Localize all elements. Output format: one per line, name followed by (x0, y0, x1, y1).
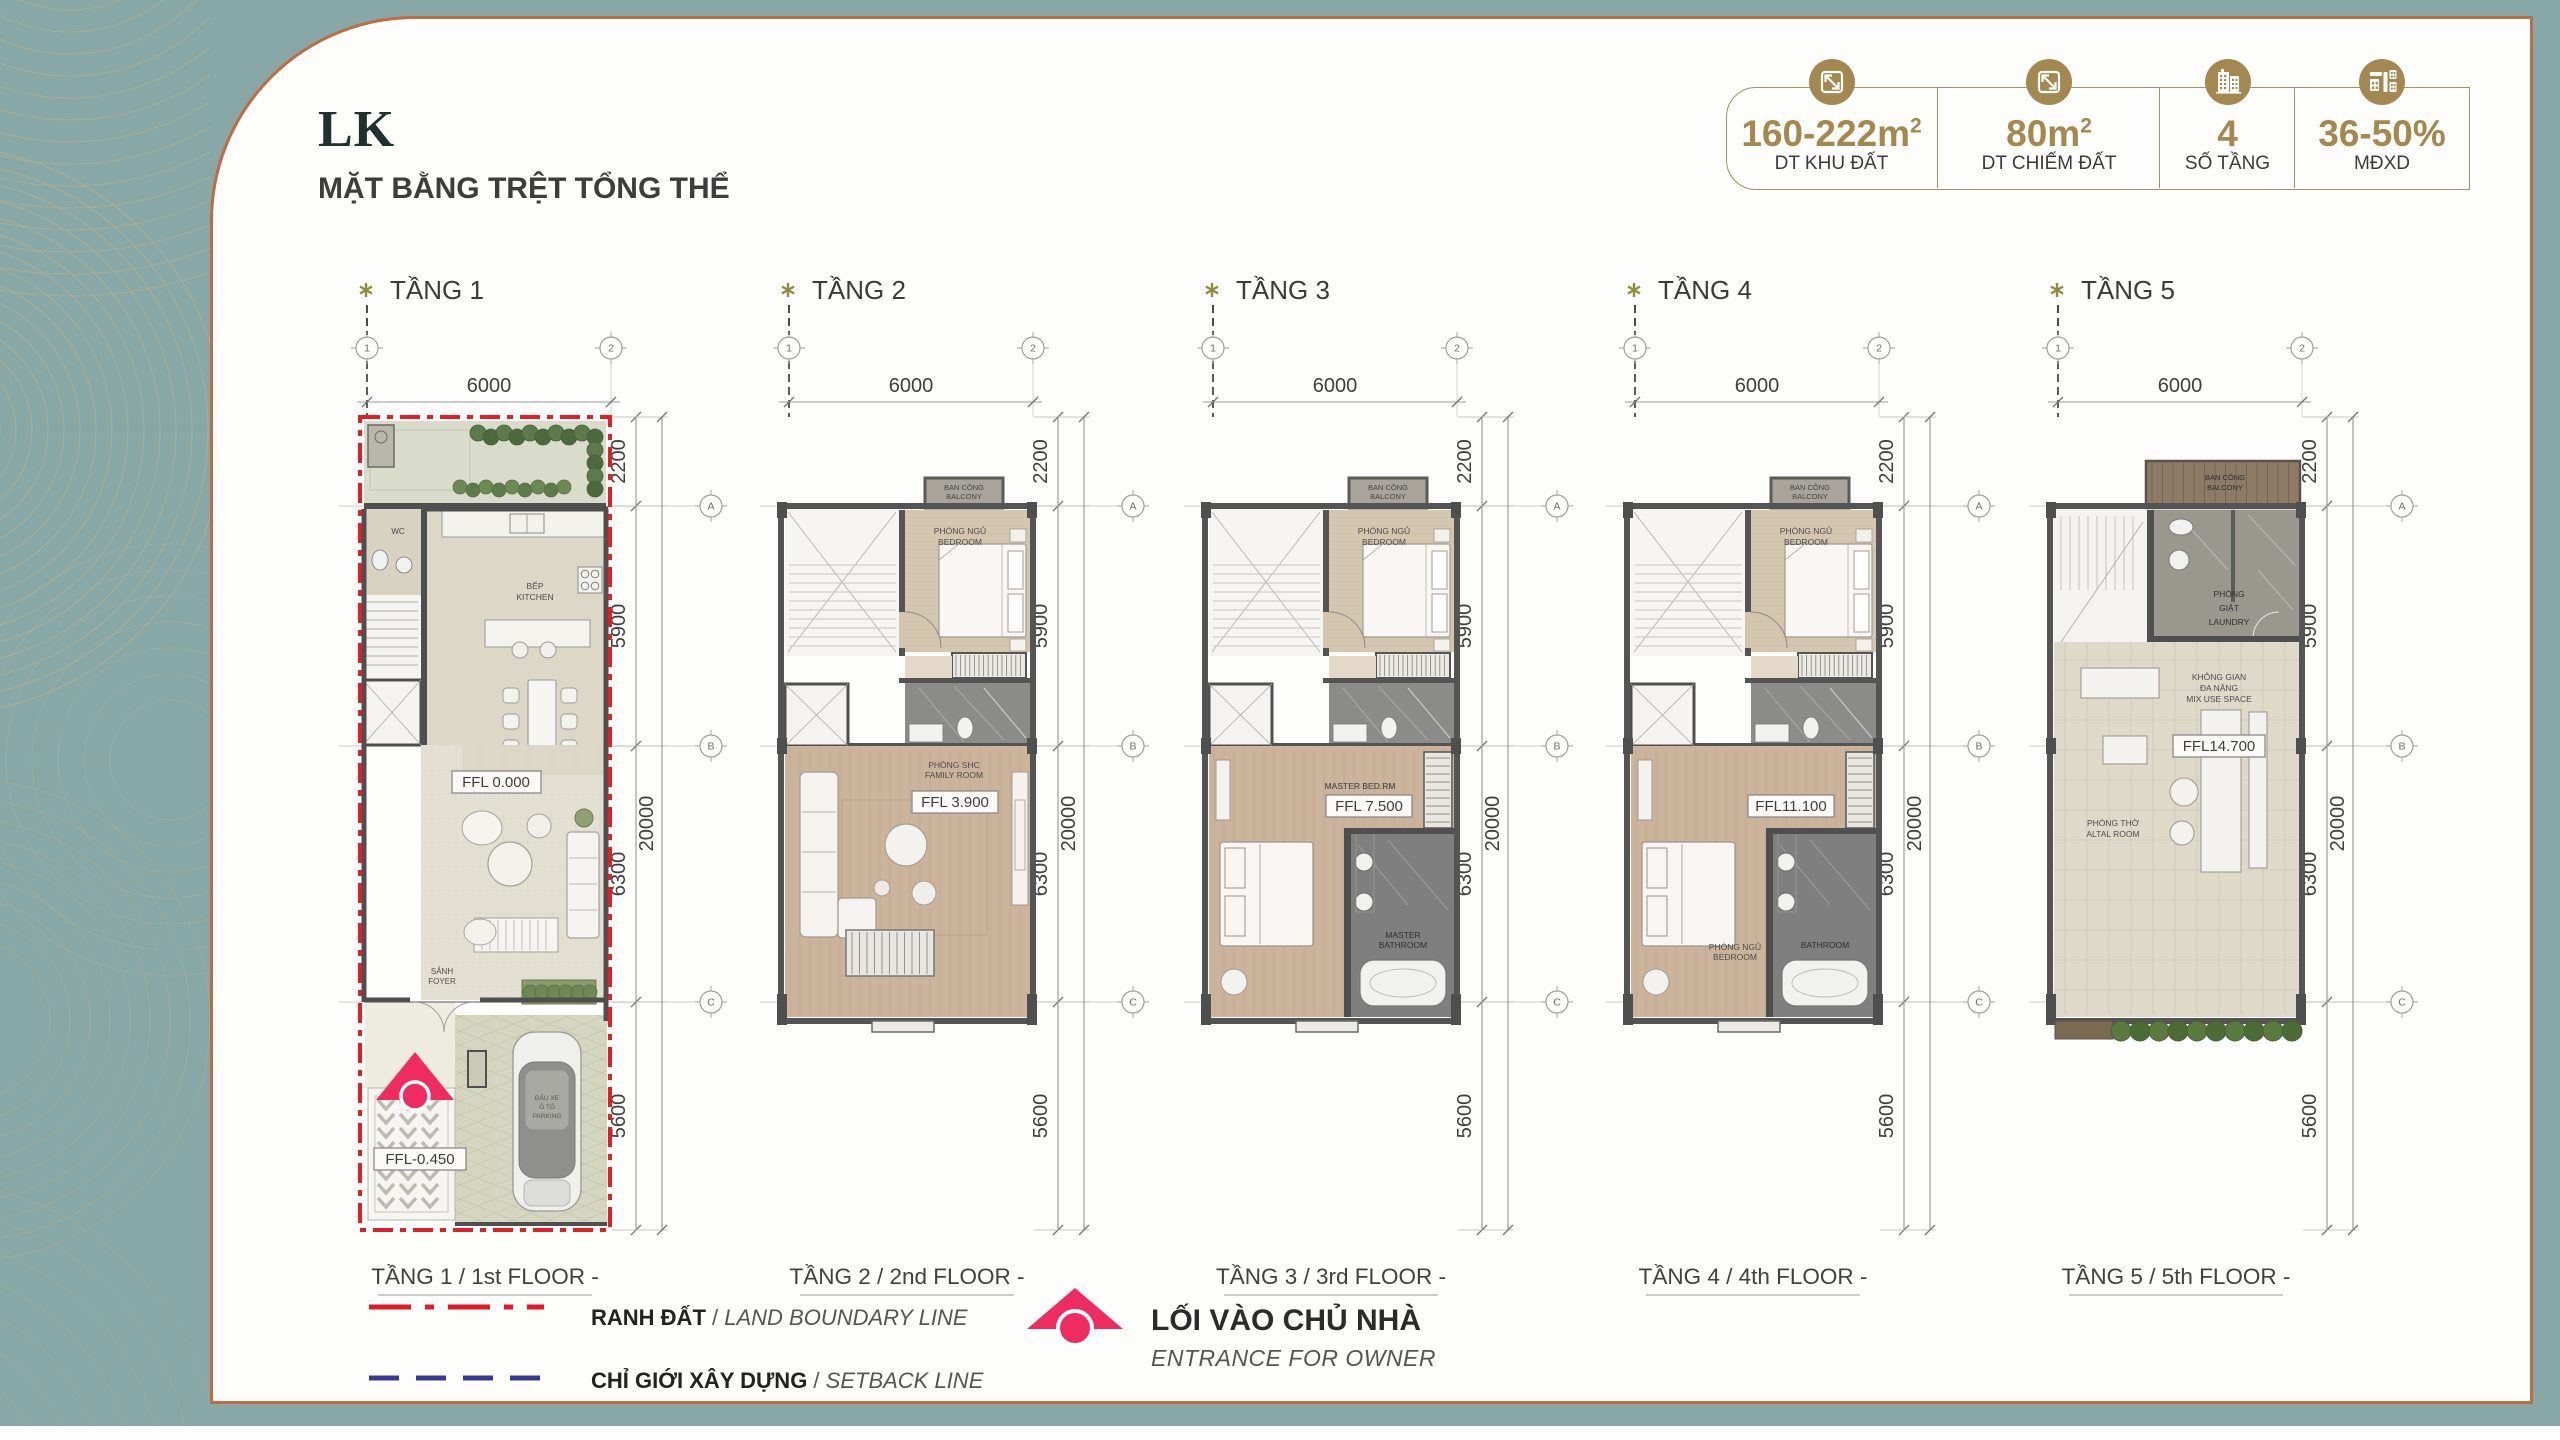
svg-text:TẦNG 5 / 5th FLOOR -: TẦNG 5 / 5th FLOOR - (2062, 1264, 2291, 1289)
svg-text:MIX USE SPACE: MIX USE SPACE (2186, 694, 2252, 704)
svg-text:MASTER: MASTER (1385, 930, 1420, 940)
svg-text:BEDROOM: BEDROOM (938, 537, 982, 547)
svg-text:A: A (707, 501, 714, 513)
svg-text:BAN CÔNG: BAN CÔNG (1790, 483, 1830, 492)
svg-text:C: C (2398, 997, 2406, 1009)
svg-text:FOYER: FOYER (428, 977, 456, 986)
svg-text:BEDROOM: BEDROOM (1784, 537, 1828, 547)
svg-text:A: A (1553, 501, 1560, 513)
svg-text:2: 2 (608, 343, 614, 355)
svg-text:BEDROOM: BEDROOM (1362, 537, 1406, 547)
svg-text:B: B (2398, 741, 2405, 753)
svg-text:LAUNDRY: LAUNDRY (2209, 617, 2250, 627)
svg-text:ĐA NĂNG: ĐA NĂNG (2200, 683, 2238, 693)
svg-text:ENTRANCE FOR OWNER: ENTRANCE FOR OWNER (1151, 1345, 1436, 1371)
svg-text:ALTAL ROOM: ALTAL ROOM (2086, 829, 2139, 839)
svg-text:5600: 5600 (1454, 1094, 1476, 1139)
svg-text:BAN CÔNG: BAN CÔNG (2205, 473, 2245, 482)
svg-text:B: B (707, 741, 714, 753)
svg-text:5600: 5600 (2299, 1094, 2321, 1139)
svg-text:20000: 20000 (1904, 796, 1926, 852)
svg-text:BALCONY: BALCONY (2207, 483, 2243, 492)
svg-text:PHÒNG SHC: PHÒNG SHC (928, 760, 979, 770)
svg-text:1: 1 (786, 343, 792, 355)
svg-text:1: 1 (1632, 343, 1638, 355)
svg-text:TẦNG 3 / 3rd FLOOR -: TẦNG 3 / 3rd FLOOR - (1216, 1264, 1446, 1289)
svg-text:LỐI VÀO CHỦ NHÀ: LỐI VÀO CHỦ NHÀ (1151, 1303, 1421, 1337)
svg-text:20000: 20000 (1482, 796, 1504, 852)
svg-text:A: A (1975, 501, 1982, 513)
svg-text:C: C (1975, 997, 1983, 1009)
svg-text:B: B (1975, 741, 1982, 753)
svg-text:PHÒNG NGỦ: PHÒNG NGỦ (1358, 525, 1410, 536)
svg-text:BALCONY: BALCONY (946, 492, 982, 501)
svg-text:TẦNG 5: TẦNG 5 (2081, 275, 2175, 305)
svg-text:BEDROOM: BEDROOM (1713, 952, 1757, 962)
svg-text:5600: 5600 (1030, 1094, 1052, 1139)
svg-text:6000: 6000 (889, 375, 934, 397)
svg-text:1: 1 (2055, 343, 2061, 355)
svg-text:6000: 6000 (467, 375, 512, 397)
svg-text:FFL 3.900: FFL 3.900 (921, 794, 989, 811)
svg-text:6000: 6000 (1735, 375, 1780, 397)
svg-text:PHÒNG THỜ: PHÒNG THỜ (2087, 818, 2140, 828)
svg-text:SẢNH: SẢNH (431, 967, 453, 976)
svg-text:A: A (2398, 501, 2405, 513)
svg-text:2: 2 (1454, 343, 1460, 355)
svg-text:MASTER BED.RM: MASTER BED.RM (1325, 781, 1396, 791)
svg-text:FFL11.100: FFL11.100 (1755, 798, 1826, 815)
svg-text:KHÔNG GIAN: KHÔNG GIAN (2192, 672, 2246, 682)
svg-text:2: 2 (2299, 343, 2305, 355)
svg-text:ĐẬU XE: ĐẬU XE (535, 1093, 560, 1102)
svg-text:A: A (1129, 501, 1136, 513)
svg-text:C: C (1129, 997, 1137, 1009)
svg-text:5600: 5600 (1876, 1094, 1898, 1139)
svg-text:6000: 6000 (2158, 375, 2203, 397)
svg-text:2200: 2200 (1030, 439, 1052, 484)
svg-text:PHÒNG: PHÒNG (2213, 589, 2244, 599)
svg-text:PHÒNG NGỦ: PHÒNG NGỦ (1709, 941, 1761, 952)
svg-text:FAMILY ROOM: FAMILY ROOM (925, 770, 983, 780)
svg-text:1: 1 (1210, 343, 1216, 355)
svg-text:RANH ĐẤT / LAND BOUNDARY LINE: RANH ĐẤT / LAND BOUNDARY LINE (591, 1305, 968, 1330)
svg-text:B: B (1553, 741, 1560, 753)
svg-text:B: B (1129, 741, 1136, 753)
svg-text:BATHROOM: BATHROOM (1379, 940, 1427, 950)
svg-text:BALCONY: BALCONY (1792, 492, 1828, 501)
svg-text:TẦNG 4: TẦNG 4 (1658, 275, 1752, 305)
svg-text:C: C (1553, 997, 1561, 1009)
svg-text:BAN CÔNG: BAN CÔNG (1368, 483, 1408, 492)
svg-text:6000: 6000 (1313, 375, 1358, 397)
svg-text:BALCONY: BALCONY (1370, 492, 1406, 501)
svg-text:Ô TÔ: Ô TÔ (539, 1102, 555, 1111)
svg-text:2: 2 (1030, 343, 1036, 355)
svg-text:TẦNG 3: TẦNG 3 (1236, 275, 1330, 305)
svg-text:20000: 20000 (1058, 796, 1080, 852)
svg-text:2200: 2200 (2299, 439, 2321, 484)
svg-text:TẦNG 1: TẦNG 1 (390, 275, 484, 305)
svg-text:BAN CÔNG: BAN CÔNG (944, 483, 984, 492)
svg-text:2200: 2200 (1454, 439, 1476, 484)
svg-text:2: 2 (1876, 343, 1882, 355)
svg-text:TẦNG 1 / 1st FLOOR -: TẦNG 1 / 1st FLOOR - (371, 1264, 599, 1289)
svg-text:FFL-0.450: FFL-0.450 (385, 1151, 454, 1168)
svg-text:PHÒNG NGỦ: PHÒNG NGỦ (934, 525, 986, 536)
svg-text:20000: 20000 (636, 796, 658, 852)
svg-text:WC: WC (391, 527, 405, 536)
svg-text:PARKING: PARKING (533, 1113, 562, 1120)
svg-text:BẾP: BẾP (526, 581, 543, 591)
svg-text:KITCHEN: KITCHEN (516, 592, 553, 602)
svg-text:20000: 20000 (2327, 796, 2349, 852)
svg-text:BATHROOM: BATHROOM (1801, 940, 1849, 950)
svg-text:2200: 2200 (1876, 439, 1898, 484)
svg-text:CHỈ GIỚI XÂY DỰNG / SETBACK LI: CHỈ GIỚI XÂY DỰNG / SETBACK LINE (591, 1368, 984, 1393)
svg-text:FFL 7.500: FFL 7.500 (1335, 798, 1403, 815)
svg-text:PHÒNG NGỦ: PHÒNG NGỦ (1780, 525, 1832, 536)
svg-text:TẦNG 2: TẦNG 2 (812, 275, 906, 305)
svg-text:1: 1 (364, 343, 370, 355)
svg-text:GIẶT: GIẶT (2219, 603, 2239, 613)
svg-text:FFL 0.000: FFL 0.000 (462, 774, 530, 791)
svg-text:TẦNG 2 / 2nd FLOOR -: TẦNG 2 / 2nd FLOOR - (789, 1264, 1024, 1289)
svg-text:FFL14.700: FFL14.700 (2183, 738, 2256, 755)
svg-text:TẦNG 4 / 4th FLOOR -: TẦNG 4 / 4th FLOOR - (1639, 1264, 1868, 1289)
svg-text:C: C (707, 997, 715, 1009)
